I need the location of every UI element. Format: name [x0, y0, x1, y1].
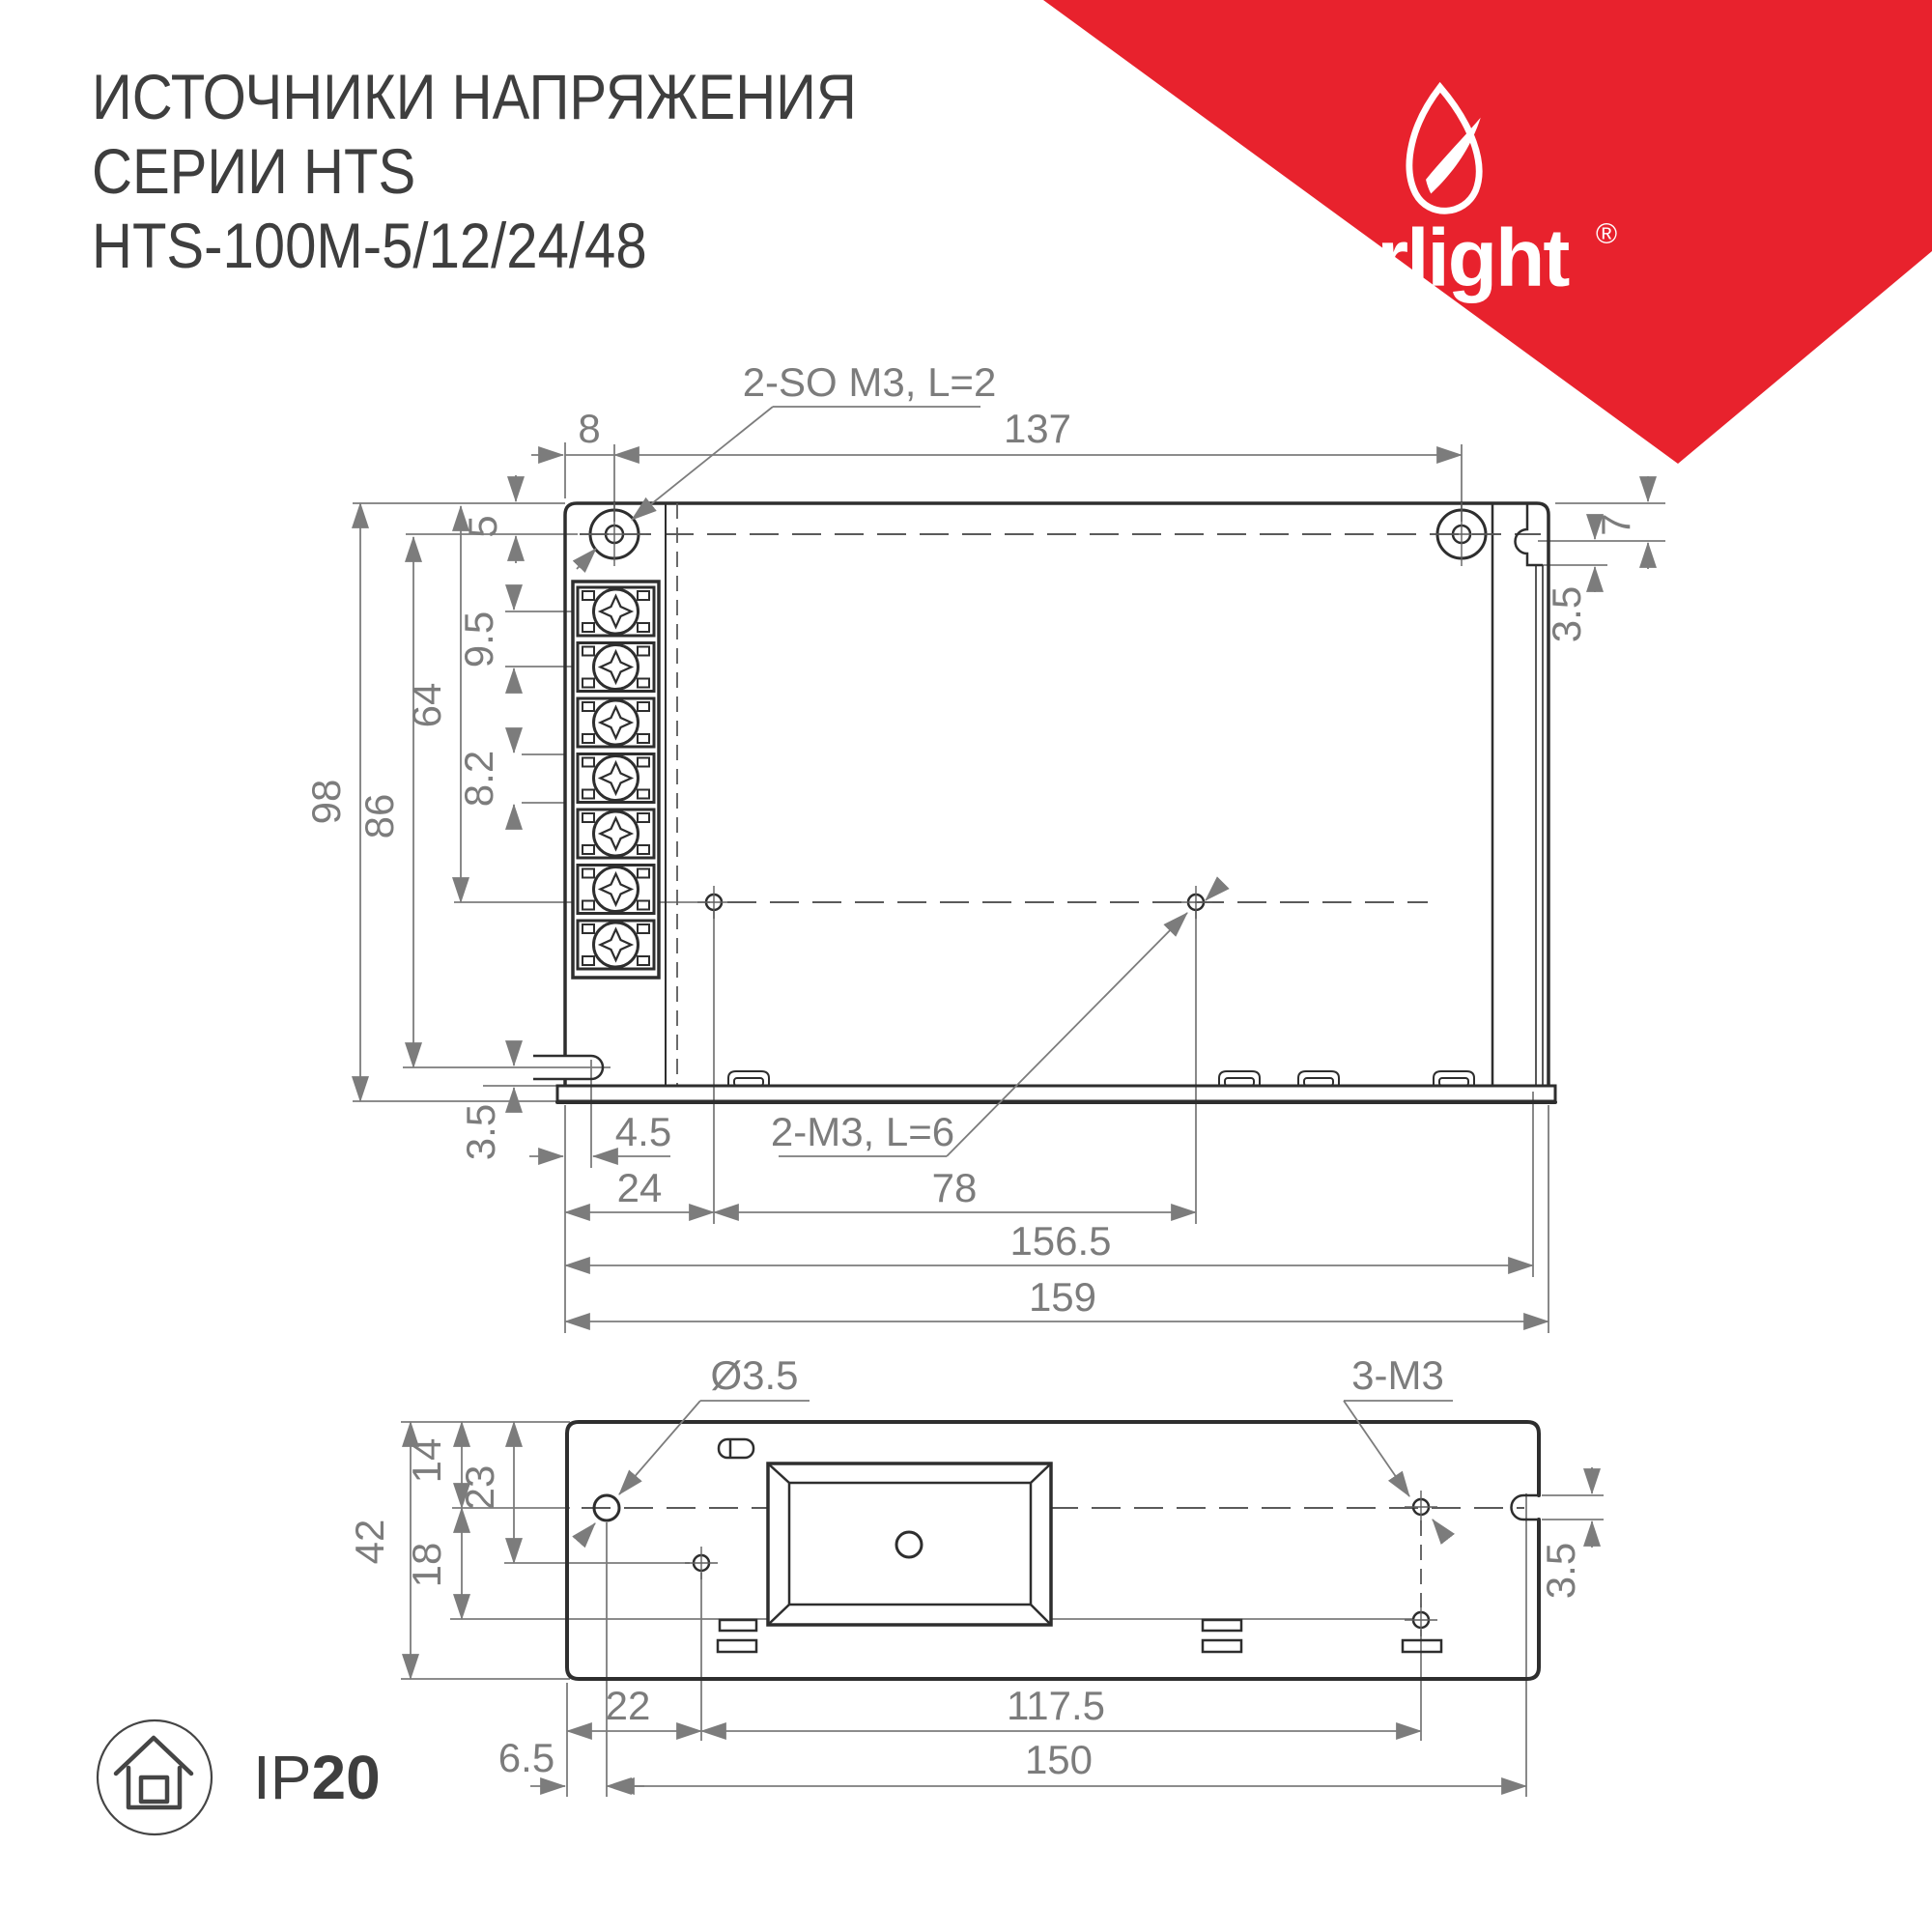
chassis-outline [533, 503, 1555, 1102]
dim-width-inner: 156.5 [1009, 1218, 1111, 1264]
dim-width-outer: 159 [1029, 1274, 1096, 1320]
dim-screw-offset-y: 5 [460, 515, 505, 537]
ip-value: 20 [311, 1743, 380, 1812]
brand-registered-mark: ® [1596, 218, 1617, 250]
callout-screws: 2-SO M3, L=2 [743, 359, 997, 405]
mount-hole-right [1179, 886, 1212, 919]
cover-screw-left [582, 502, 646, 566]
dim-hole-span-x: 117.5 [1007, 1683, 1105, 1728]
indoor-house-icon [116, 1738, 191, 1807]
top-view-centerlines [580, 534, 1541, 902]
base-hole-m3-c [1405, 1604, 1437, 1636]
callout-holes: 2-M3, L=6 [771, 1109, 954, 1154]
dim-hole2-x: 22 [606, 1683, 651, 1728]
ip-rating-badge: IP20 [98, 1720, 381, 1834]
dim-hole3-y: 18 [404, 1543, 449, 1588]
dim-hole1-x: 6.5 [498, 1735, 554, 1780]
vent-slot [1203, 1620, 1241, 1631]
title-line-1: ИСТОЧНИКИ НАПРЯЖЕНИЯ [92, 60, 857, 134]
dim-terminal-pitch-a: 9.5 [456, 611, 501, 668]
vent-slot [720, 1620, 756, 1631]
datasheet-page: arlight ® [0, 0, 1932, 1932]
top-view: 8 137 2-SO M3, L=2 5 9.5 64 8.2 98 86 3.… [303, 359, 1665, 1333]
top-view-extension-lines [353, 442, 1665, 1333]
base-centerlines [582, 1508, 1524, 1607]
base-features [594, 1439, 1441, 1652]
dim-terminal-pitch-b: 8.2 [456, 751, 501, 807]
bottom-view: Ø3.5 3-M3 42 14 23 18 22 117.5 6.5 150 3… [347, 1352, 1604, 1797]
dim-slot-offset-x: 4.5 [615, 1109, 671, 1154]
dim-side-notch-y: 7 [1593, 513, 1638, 535]
dim-screw-span-x: 137 [1004, 406, 1071, 451]
dim-height-to-slot: 86 [356, 794, 402, 839]
base-outline [567, 1422, 1539, 1679]
dim-height-outer: 98 [303, 780, 349, 825]
technical-drawing: arlight ® [0, 0, 1932, 1932]
base-right-notch [1512, 1495, 1540, 1520]
ip-rating-text: IP20 [253, 1743, 381, 1812]
vent-slot [718, 1640, 756, 1652]
dim-base-height: 42 [347, 1520, 392, 1565]
dim-side-notch-depth: 3.5 [1544, 586, 1589, 642]
dim-hole2-y: 23 [457, 1465, 502, 1511]
dim-screw-offset-x: 8 [578, 406, 600, 451]
title-line-3: HTS-100M-5/12/24/48 [92, 209, 857, 283]
vent-slot [1403, 1640, 1441, 1652]
page-title: ИСТОЧНИКИ НАПРЯЖЕНИЯ СЕРИИ HTS HTS-100M-… [92, 60, 857, 283]
dim-hole-offset-x: 24 [617, 1165, 663, 1210]
ip-prefix: IP [253, 1743, 311, 1812]
cover-screw-right [1430, 502, 1493, 566]
callout-hole-diameter: Ø3.5 [710, 1352, 798, 1398]
dim-mount-span-x: 150 [1025, 1737, 1093, 1782]
top-view-dimension-lines [360, 455, 1648, 1321]
dim-slot-to-base: 3.5 [458, 1104, 503, 1160]
dim-base-notch-depth: 3.5 [1538, 1543, 1583, 1599]
dim-hole-span-x: 78 [932, 1165, 978, 1210]
terminal-block [573, 582, 659, 978]
top-view-callout-leaders [577, 407, 1220, 1156]
base-hole-m3-a [685, 1547, 718, 1579]
mount-hole-left [697, 886, 730, 919]
brand-corner: arlight ® [1043, 0, 1932, 464]
brand-name: arlight [1334, 213, 1570, 303]
dim-mount-span-y: 64 [404, 683, 449, 728]
dim-centerline-y: 14 [404, 1438, 449, 1484]
base-recess [768, 1463, 1051, 1625]
callout-threads: 3-M3 [1351, 1352, 1444, 1398]
vent-slot [1203, 1640, 1241, 1652]
title-line-2: СЕРИИ HTS [92, 134, 857, 209]
